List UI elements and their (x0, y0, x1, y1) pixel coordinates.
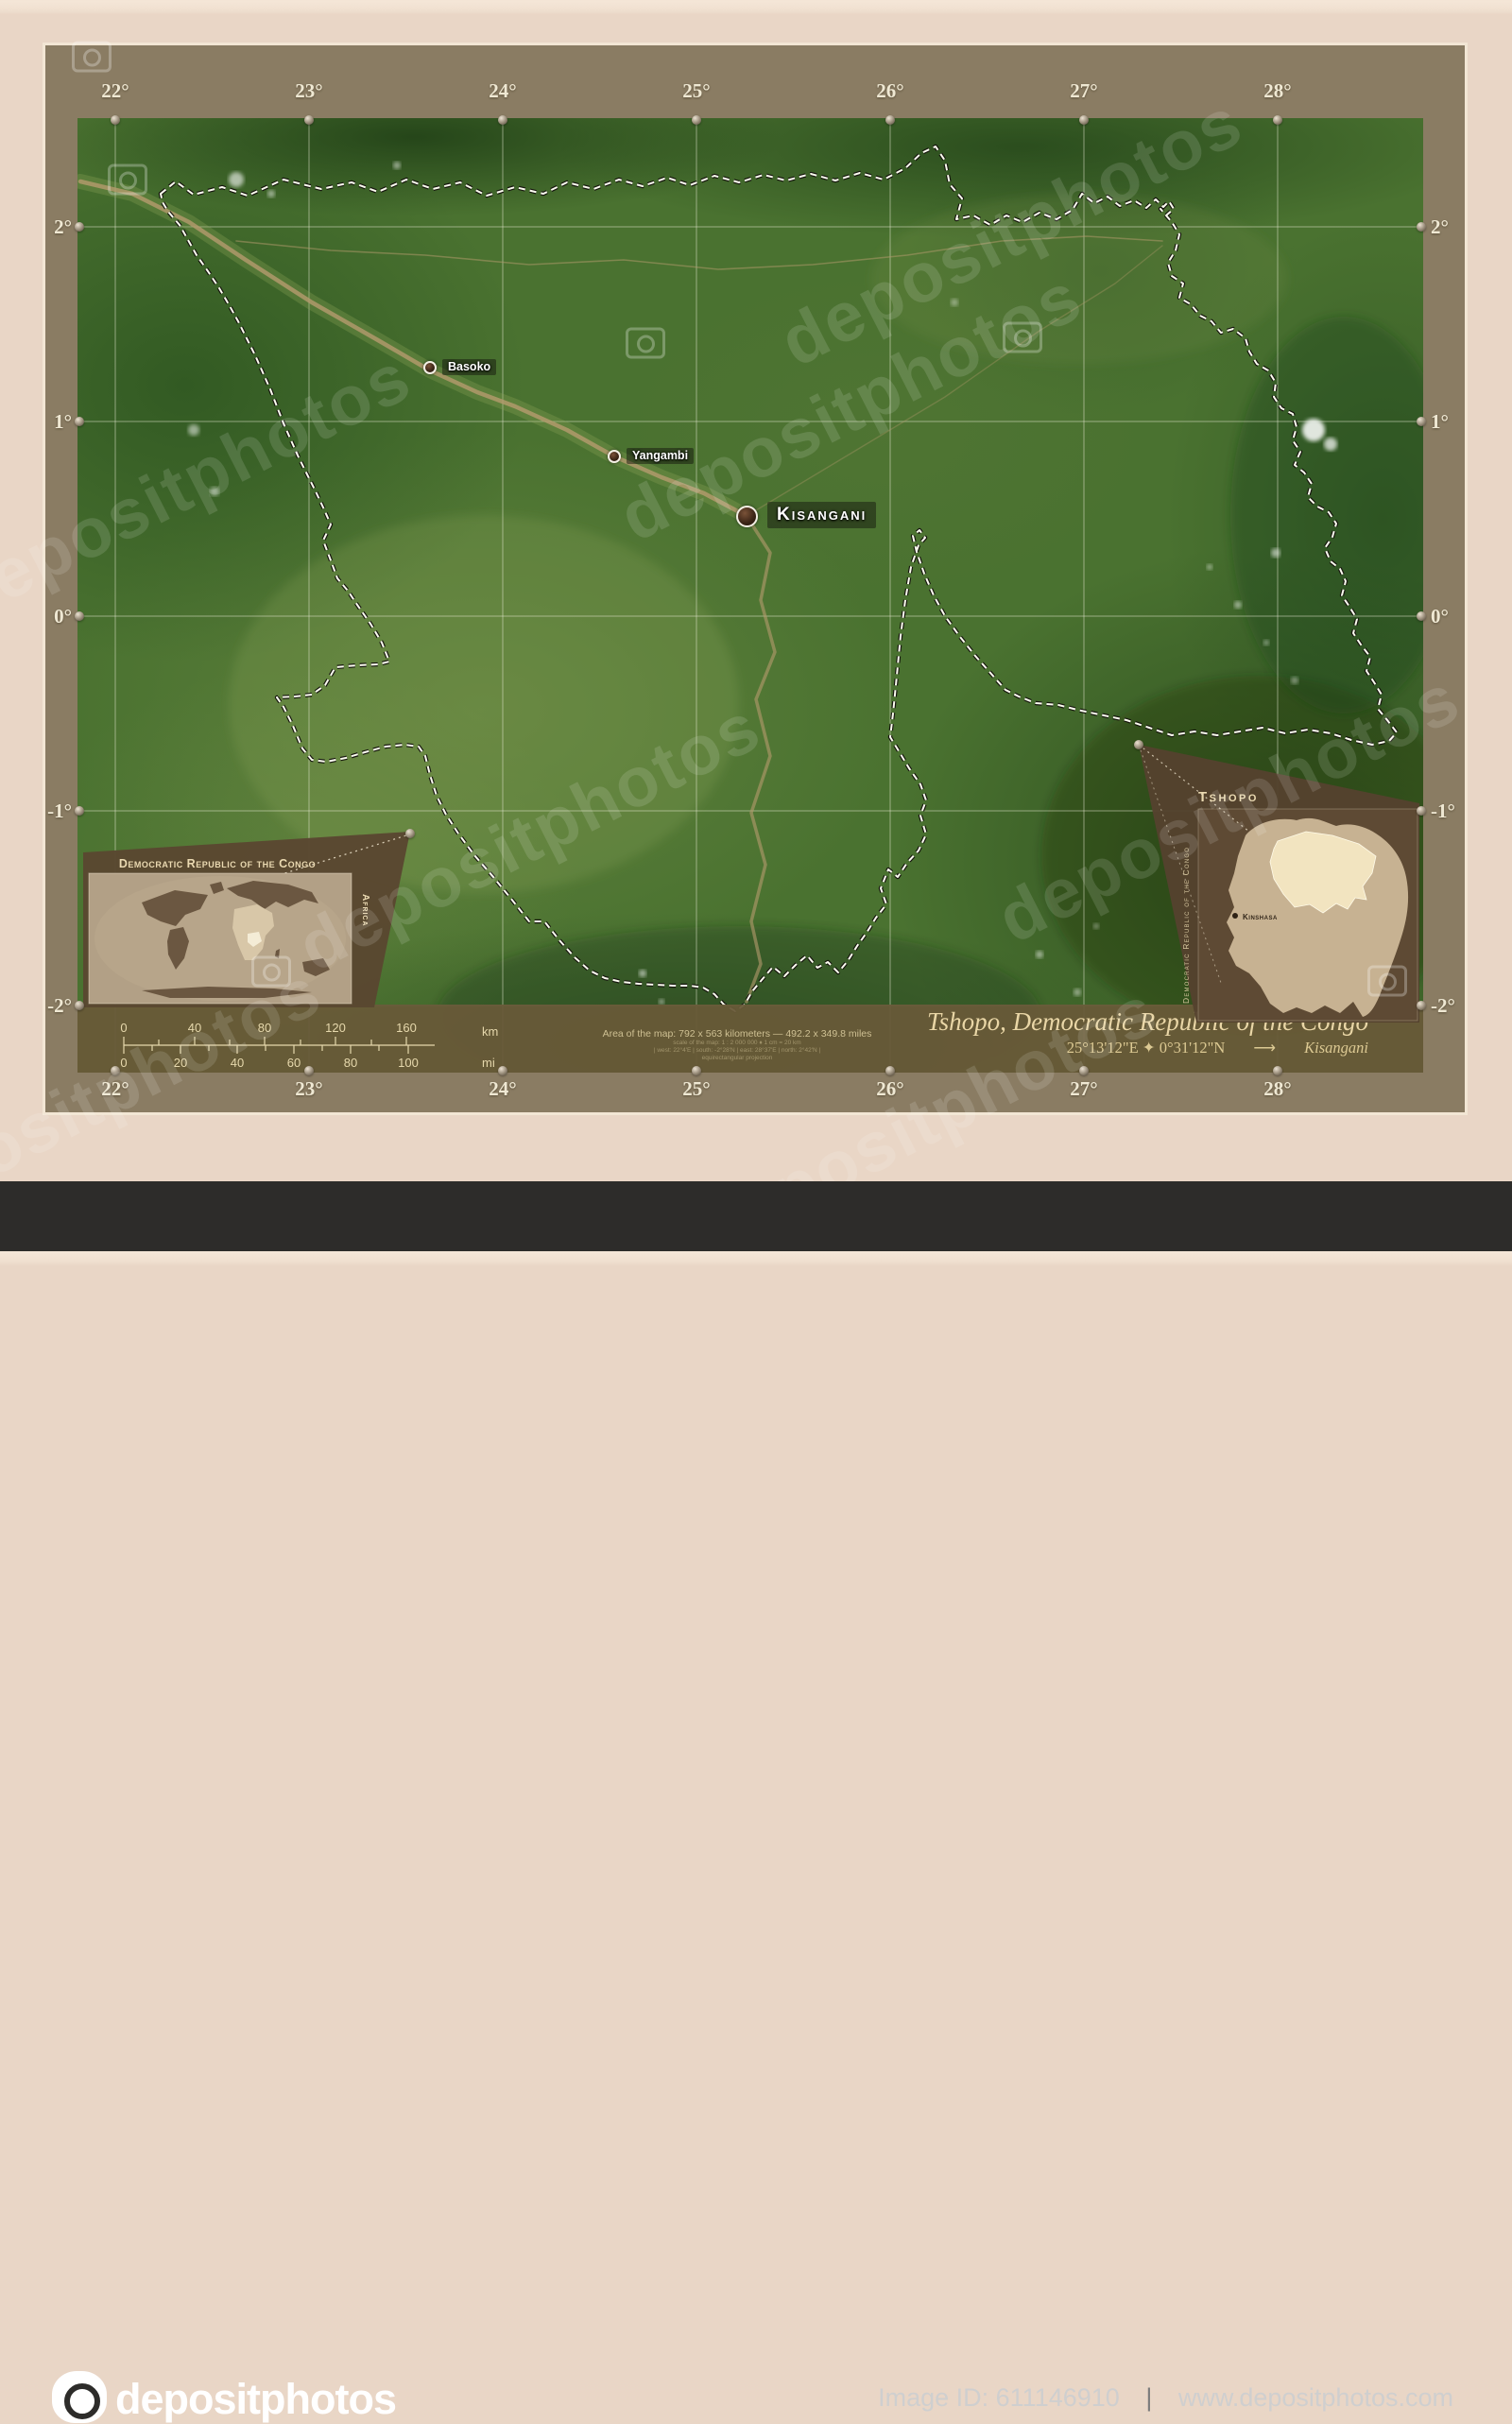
lon-label-top-22: 22° (87, 79, 144, 103)
lon-label-top-25: 25° (668, 79, 725, 103)
arrow-glyph: ⟶ (1253, 1039, 1276, 1057)
capital-name: Kisangani (1304, 1039, 1368, 1057)
grid-marker (1273, 115, 1282, 125)
basoko-label: Basoko (442, 359, 496, 375)
depositphotos-bar: depositphotos Image ID: 611146910 | www.… (0, 1181, 1512, 1251)
grid-marker (885, 1066, 895, 1075)
grid-marker (1417, 611, 1426, 621)
lon-label-bottom-22: 22° (87, 1077, 144, 1101)
image-id-text: Image ID: 611146910 (878, 2383, 1120, 2412)
yangambi-dot (608, 450, 621, 463)
basoko-dot (423, 361, 437, 374)
grid-marker (692, 1066, 701, 1075)
map-subtitle: 25°13'12"E ✦ 0°31'12"N ⟶ Kisangani (850, 1039, 1368, 1057)
km-tick-0: 0 (120, 1021, 127, 1035)
lat-label-right-1: 1° (1431, 410, 1478, 434)
km-tick-80: 80 (258, 1021, 271, 1035)
lat-label-left-1: 1° (28, 410, 72, 434)
grid-marker (1273, 1066, 1282, 1075)
grid-marker (1417, 417, 1426, 426)
grid-marker (111, 1066, 120, 1075)
lat-label-right--2: -2° (1431, 994, 1478, 1018)
center-coordinates: 25°13'12"E ✦ 0°31'12"N (1067, 1039, 1225, 1057)
depositphotos-camera-icon (52, 2371, 107, 2423)
grid-marker (75, 417, 84, 426)
lat-label-right--1: -1° (1431, 799, 1478, 823)
grid-marker (1417, 806, 1426, 816)
kisangani-label: Kisangani (767, 502, 876, 528)
grid-marker (111, 115, 120, 125)
lon-label-bottom-27: 27° (1056, 1077, 1112, 1101)
lon-label-top-23: 23° (281, 79, 337, 103)
lat-label-right-2: 2° (1431, 215, 1478, 239)
grid-marker (1079, 115, 1089, 125)
image-id-block: Image ID: 611146910 | www.depositphotos.… (878, 2383, 1453, 2413)
lat-label-right-0: 0° (1431, 605, 1478, 628)
grid-marker (75, 1001, 84, 1010)
grid-marker (75, 806, 84, 816)
mi-tick-0: 0 (120, 1056, 127, 1070)
km-tick-120: 120 (325, 1021, 346, 1035)
mi-tick-80: 80 (344, 1056, 357, 1070)
kisangani-dot (736, 506, 758, 527)
grid-marker (75, 222, 84, 232)
website-text: www.depositphotos.com (1178, 2383, 1453, 2412)
lon-label-bottom-24: 24° (474, 1077, 531, 1101)
lat-label-left-2: 2° (28, 215, 72, 239)
mi-tick-20: 20 (174, 1056, 187, 1070)
lon-label-bottom-26: 26° (862, 1077, 919, 1101)
km-tick-40: 40 (188, 1021, 201, 1035)
divider: | (1145, 2383, 1152, 2412)
mi-tick-40: 40 (231, 1056, 244, 1070)
yangambi-label: Yangambi (627, 448, 694, 464)
lon-label-bottom-28: 28° (1249, 1077, 1306, 1101)
inset-anchor-marker (405, 829, 415, 838)
map-graphics (77, 118, 1423, 1073)
inset-anchor-marker (1134, 740, 1143, 749)
grid-marker (1079, 1066, 1089, 1075)
satellite-map (77, 118, 1423, 1073)
lat-label-left--1: -1° (28, 799, 72, 823)
depositphotos-logo: depositphotos (115, 2375, 396, 2424)
mi-tick-100: 100 (398, 1056, 419, 1070)
grid-marker (692, 115, 701, 125)
lon-label-top-27: 27° (1056, 79, 1112, 103)
mi-tick-60: 60 (287, 1056, 301, 1070)
lat-label-left--2: -2° (28, 994, 72, 1018)
grid-marker (498, 115, 507, 125)
grid-marker (304, 1066, 314, 1075)
terrain-shading (229, 194, 1423, 1073)
lon-label-top-28: 28° (1249, 79, 1306, 103)
grid-marker (304, 115, 314, 125)
grid-marker (1417, 1001, 1426, 1010)
grid-marker (498, 1066, 507, 1075)
lon-label-bottom-25: 25° (668, 1077, 725, 1101)
map-title: Tshopo, Democratic Republic of the Congo (850, 1007, 1368, 1036)
grid-marker (1417, 222, 1426, 232)
grid-marker (75, 611, 84, 621)
lon-label-top-24: 24° (474, 79, 531, 103)
grid-marker (885, 115, 895, 125)
lon-label-top-26: 26° (862, 79, 919, 103)
lat-label-left-0: 0° (28, 605, 72, 628)
lon-label-bottom-23: 23° (281, 1077, 337, 1101)
km-tick-160: 160 (396, 1021, 417, 1035)
map-title-block: Tshopo, Democratic Republic of the Congo… (850, 1007, 1368, 1057)
